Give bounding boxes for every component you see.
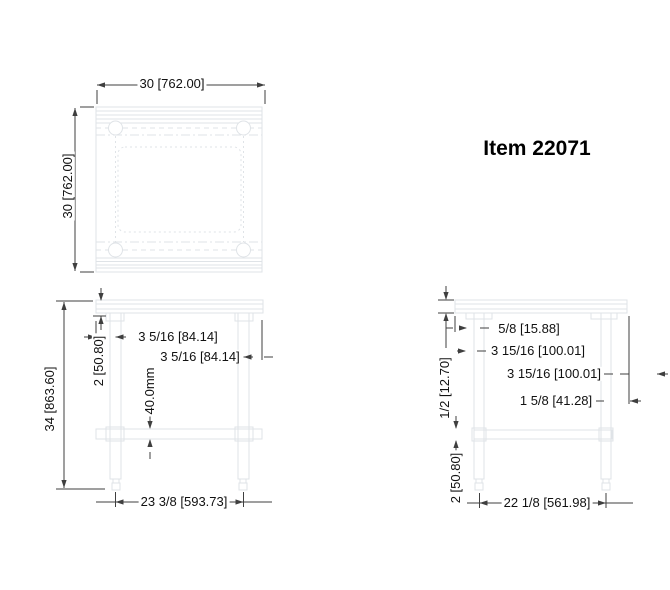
undershelf [474,430,612,439]
right-leg [601,313,611,479]
top-view-depth-dim: 30 [762.00] [61,151,75,220]
right-leg [238,313,249,479]
foot-stem [240,479,246,483]
corner-hole [109,243,123,257]
corner-hole [237,243,251,257]
left-leg [474,313,484,479]
foot-stem [113,479,119,483]
drawing-canvas: Item 22071 30 [762.00] 30 [762.00] 34 [8… [0,0,670,590]
shelf-hidden-outline [118,147,241,232]
side-shelf-offset-dim: 2 [50.80] [449,451,463,506]
front-shelf-channel-dim: 40.0mm [143,366,157,417]
side-leg-span-dim: 22 1/8 [561.98] [502,496,593,510]
tabletop-front [96,300,263,313]
adjustable-foot [475,483,483,490]
front-top-assembly-dim: 2 [50.80] [92,334,106,389]
side-leg-width-dim: 1 5/8 [41.28] [518,394,594,408]
foot-stem [476,479,482,483]
foot-stem [603,479,609,483]
side-left-leg-offset-dim: 3 15/16 [100.01] [489,344,587,358]
front-left-leg-offset-dim: 3 5/16 [84.14] [136,330,220,344]
leg-gusset [466,313,492,319]
adjustable-foot [112,483,120,490]
corner-hole [237,121,251,135]
front-right-leg-offset-dim: 3 5/16 [84.14] [158,350,242,364]
adjustable-foot [602,483,610,490]
side-top-thickness-dim: 1/2 [12.70] [438,355,452,420]
side-edge-offset-dim: 5/8 [15.88] [496,322,561,336]
item-number-label: Item 22071 [483,137,590,161]
top-view-width-dim: 30 [762.00] [137,77,206,91]
side-right-leg-offset-dim: 3 15/16 [100.01] [505,367,603,381]
front-leg-span-dim: 23 3/8 [593.73] [139,495,230,509]
tabletop-side [455,300,627,313]
corner-hole [109,121,123,135]
adjustable-foot [239,483,247,490]
leg-gusset [591,313,617,319]
front-overall-height-dim: 34 [863.60] [43,364,57,433]
top-view-drawing [96,107,262,272]
